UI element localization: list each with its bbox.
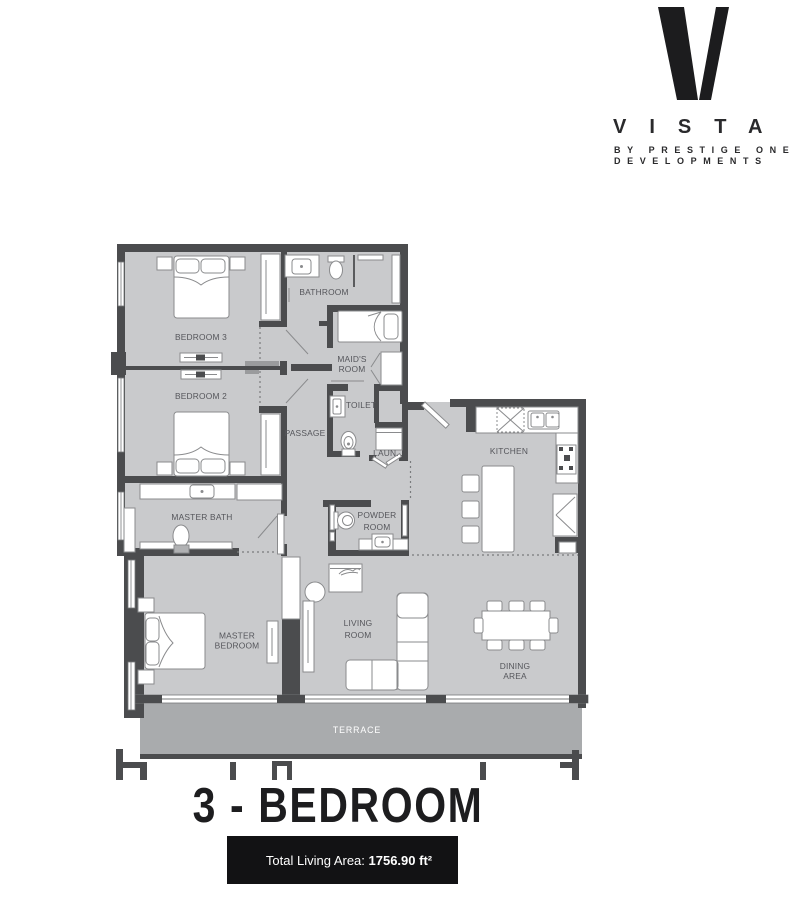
svg-text:LIVING: LIVING (344, 618, 373, 628)
svg-text:LAUN.: LAUN. (373, 448, 399, 458)
svg-text:VISTA: VISTA (613, 116, 785, 138)
svg-text:MAID'S: MAID'S (337, 354, 367, 364)
svg-text:BEDROOM: BEDROOM (215, 641, 260, 651)
svg-text:BATHROOM: BATHROOM (299, 287, 348, 297)
svg-text:TOILET: TOILET (346, 400, 376, 410)
svg-text:TERRACE: TERRACE (333, 725, 381, 735)
svg-text:DEVELOPMENTS: DEVELOPMENTS (614, 156, 768, 166)
svg-text:KITCHEN: KITCHEN (490, 446, 528, 456)
svg-text:DINING: DINING (500, 661, 531, 671)
svg-text:BEDROOM 2: BEDROOM 2 (175, 391, 227, 401)
svg-text:AREA: AREA (503, 671, 527, 681)
svg-text:ROOM: ROOM (339, 364, 366, 374)
svg-text:3 - BEDROOM: 3 - BEDROOM (193, 777, 484, 832)
svg-text:Total Living Area: 1756.90 ft²: Total Living Area: 1756.90 ft² (266, 853, 433, 868)
svg-text:PASSAGE: PASSAGE (285, 428, 326, 438)
svg-text:ROOM: ROOM (364, 522, 391, 532)
svg-text:MASTER BATH: MASTER BATH (171, 512, 232, 522)
svg-text:ROOM: ROOM (345, 630, 372, 640)
svg-text:POWDER: POWDER (358, 510, 397, 520)
svg-text:MASTER: MASTER (219, 631, 255, 641)
svg-text:BEDROOM 3: BEDROOM 3 (175, 332, 227, 342)
svg-text:BY PRESTIGE ONE: BY PRESTIGE ONE (614, 145, 795, 155)
